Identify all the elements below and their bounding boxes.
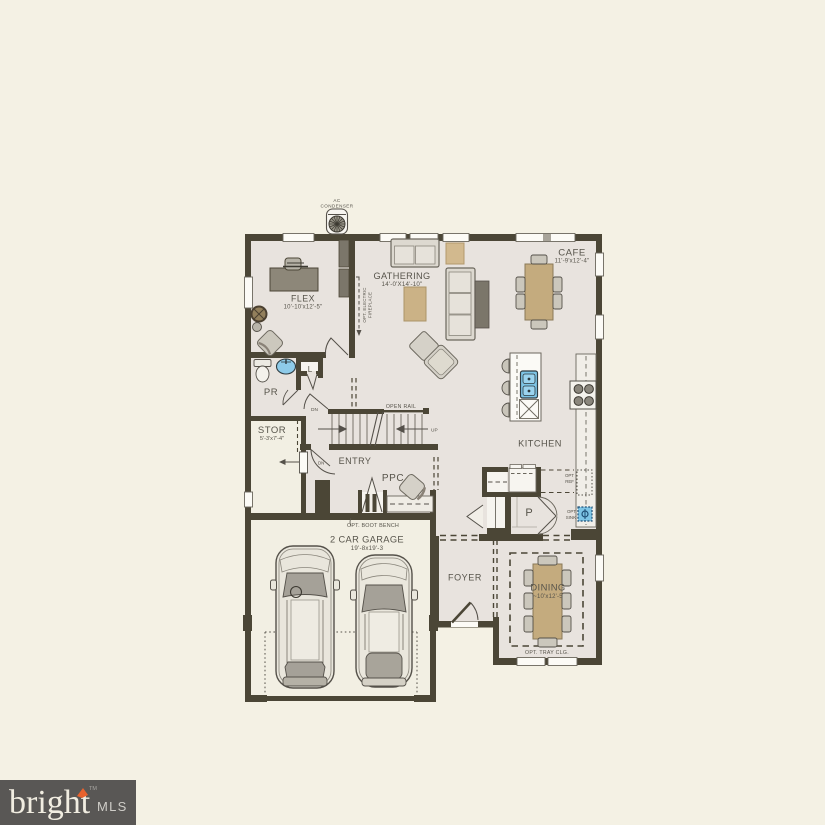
svg-text:FIREPLACE: FIREPLACE [368,292,373,318]
svg-text:OPT. TRAY CLG.: OPT. TRAY CLG. [525,650,569,656]
svg-text:FOYER: FOYER [448,573,482,583]
svg-text:GATHERING: GATHERING [373,271,430,281]
svg-text:OPT. BOOT BENCH: OPT. BOOT BENCH [347,523,399,529]
svg-text:OPT: OPT [567,509,576,514]
svg-text:AC: AC [333,198,340,203]
svg-text:19'-8x19'-3: 19'-8x19'-3 [351,545,384,552]
svg-text:OPT: OPT [565,473,574,478]
svg-text:OPEN RAIL: OPEN RAIL [386,404,416,410]
svg-text:STOR: STOR [258,425,286,436]
svg-text:TM: TM [89,786,97,792]
svg-text:L: L [308,365,313,374]
svg-text:SINK: SINK [566,515,576,520]
svg-text:PR: PR [264,387,278,398]
svg-text:PPC: PPC [382,473,404,484]
svg-text:UP: UP [431,428,438,434]
svg-text:2 CAR GARAGE: 2 CAR GARAGE [330,535,404,545]
svg-text:10'-10'x12'-5": 10'-10'x12'-5" [284,305,323,311]
svg-text:OPT. ELECTRIC: OPT. ELECTRIC [362,287,367,322]
svg-text:11'-9'x12'-4": 11'-9'x12'-4" [555,259,590,265]
svg-text:FLEX: FLEX [291,294,315,304]
svg-text:P: P [525,507,532,519]
svg-text:~10'x12'-5: ~10'x12'-5 [533,594,563,600]
svg-text:DN: DN [311,407,318,413]
svg-text:CONDENSER: CONDENSER [321,204,354,209]
svg-text:CAFE: CAFE [558,248,586,259]
svg-text:KITCHEN: KITCHEN [518,439,562,449]
svg-text:5'-3'x7'-4": 5'-3'x7'-4" [260,436,284,442]
svg-text:bright: bright [9,784,91,821]
svg-text:REF: REF [565,479,574,484]
svg-text:DINING: DINING [530,582,565,593]
svg-text:MLS: MLS [97,799,128,814]
svg-text:14'-0'X14'-10": 14'-0'X14'-10" [382,281,423,288]
svg-text:DN: DN [318,461,324,466]
svg-text:ENTRY: ENTRY [339,456,372,466]
